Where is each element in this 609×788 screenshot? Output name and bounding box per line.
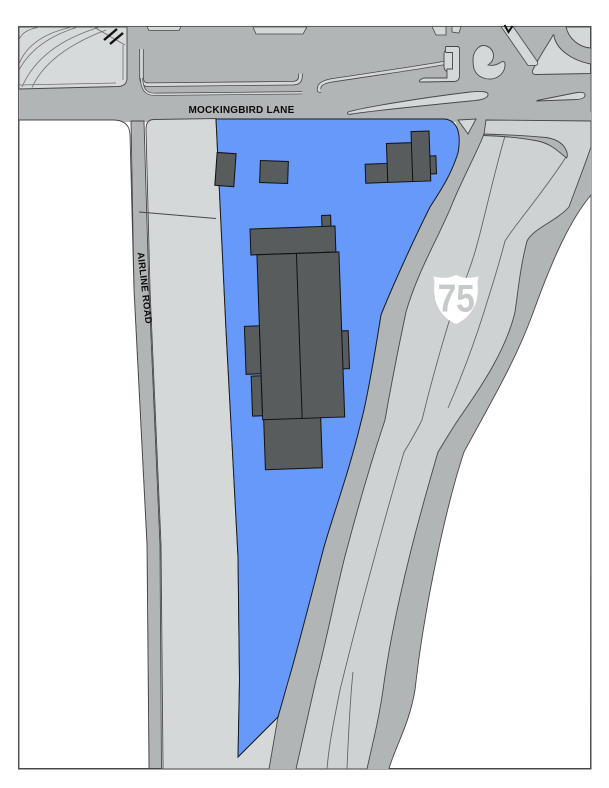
svg-text:MOCKINGBIRD LANE: MOCKINGBIRD LANE [189,105,295,116]
svg-text:75: 75 [438,278,475,321]
